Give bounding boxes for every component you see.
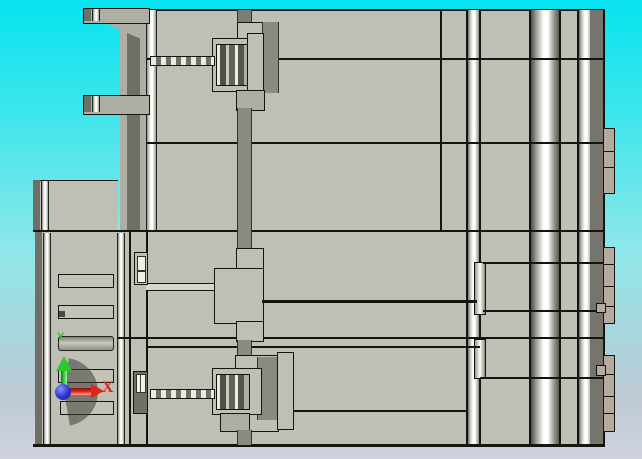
- tab-notch-line: [604, 396, 614, 397]
- ejector-bar-bottom: [237, 430, 252, 445]
- clamp-tab-top-cap: [84, 9, 91, 21]
- slot-2[interactable]: [58, 305, 114, 319]
- plate-edge-vline: [440, 10, 442, 232]
- threaded-rod-bottom[interactable]: [150, 389, 215, 399]
- triad-y-arrowhead[interactable]: [56, 356, 72, 371]
- slot-1[interactable]: [58, 274, 114, 288]
- lower-body-left-vline: [129, 232, 131, 444]
- triad-x-axis-shaft[interactable]: [70, 388, 91, 395]
- plate-line-right-lower: [480, 377, 604, 379]
- cad-viewport[interactable]: Y X: [0, 0, 642, 459]
- tab-notch-line: [604, 151, 614, 152]
- plate-line-6: [292, 410, 466, 412]
- bolt-head-section-top[interactable]: [216, 44, 249, 86]
- left-clamp-column-dark-band: [127, 21, 140, 232]
- bottom-edge-line: [33, 444, 605, 447]
- guide-pin-left[interactable]: [146, 10, 157, 232]
- bolt-plate-bottom[interactable]: [277, 352, 294, 430]
- triad-y-label: Y: [57, 332, 64, 342]
- latch-window: [137, 271, 146, 283]
- upper-left-panel-highlight: [41, 181, 49, 232]
- upper-left-panel-edge: [33, 180, 40, 232]
- clamp-tab-bottom-highlight: [92, 96, 100, 112]
- plate-line-right-mid: [483, 310, 604, 312]
- triad-x-label: X: [102, 379, 114, 397]
- tab-notch-line: [604, 286, 614, 287]
- tab-notch-line: [604, 413, 614, 414]
- clamp-tab-top-highlight: [92, 9, 100, 21]
- sprue-block-top[interactable]: [237, 10, 252, 22]
- clamp-tab-bottom-cap: [84, 96, 91, 112]
- bolt-plate-top[interactable]: [247, 33, 264, 97]
- side-lock-tab-1[interactable]: [603, 128, 615, 194]
- dark-band-top: [262, 22, 279, 93]
- guide-pin-step-lower[interactable]: [474, 339, 486, 379]
- sprue-neck-bottom[interactable]: [236, 321, 264, 342]
- bolt-head-section-bottom[interactable]: [216, 374, 250, 410]
- tab-notch-line: [604, 264, 614, 265]
- plate-line-4: [118, 337, 605, 339]
- latch-upper[interactable]: [134, 252, 148, 285]
- thin-rod-mid: [146, 283, 214, 291]
- parting-line-thick: [262, 300, 477, 303]
- plate-line-3: [33, 230, 605, 232]
- slot-2-notch: [59, 311, 65, 317]
- side-lock-notch-1: [596, 303, 606, 313]
- return-pin-bar[interactable]: [58, 336, 114, 351]
- plate-line-right-upper: [483, 262, 604, 264]
- latch-lower[interactable]: [133, 371, 148, 414]
- triad-origin-sphere[interactable]: [55, 384, 71, 400]
- ejector-bar-upper[interactable]: [237, 108, 252, 249]
- latch-lower-window: [136, 374, 146, 393]
- guide-pin-step-upper[interactable]: [474, 262, 486, 315]
- plate-line-2: [147, 142, 605, 144]
- sprue-body[interactable]: [214, 268, 264, 324]
- threaded-rod-top[interactable]: [150, 56, 215, 66]
- side-lock-notch-2: [596, 365, 606, 376]
- tab-notch-line: [604, 167, 614, 168]
- latch-window: [137, 256, 146, 271]
- plate-line-5: [146, 346, 480, 348]
